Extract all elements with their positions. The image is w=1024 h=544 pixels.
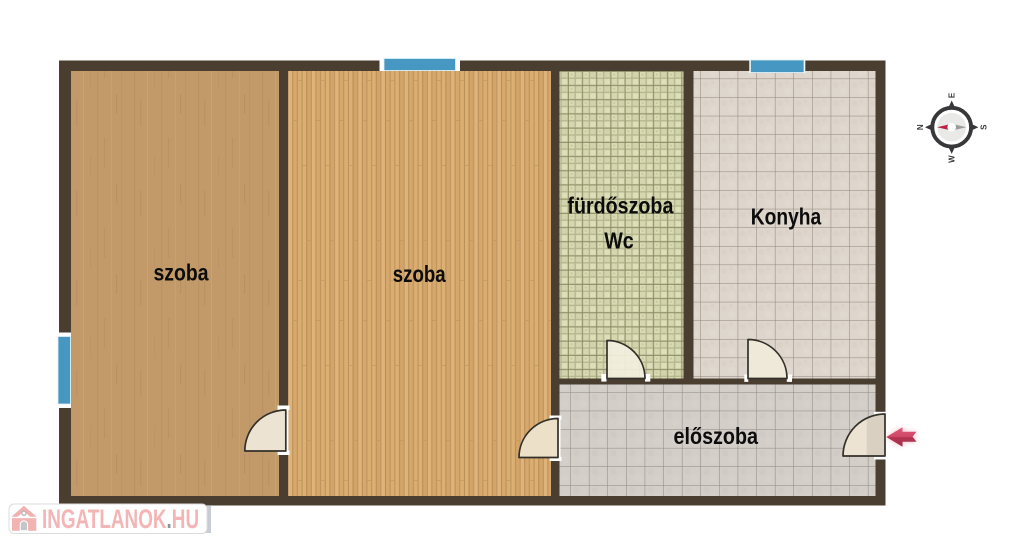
- svg-text:Wc: Wc: [604, 228, 634, 254]
- svg-text:előszoba: előszoba: [674, 423, 759, 449]
- svg-text:W: W: [948, 155, 957, 163]
- svg-text:szoba: szoba: [154, 260, 209, 286]
- svg-text:E: E: [948, 92, 957, 98]
- svg-text:Konyha: Konyha: [751, 204, 822, 230]
- svg-text:N: N: [916, 124, 925, 130]
- svg-text:fürdőszoba: fürdőszoba: [567, 193, 673, 219]
- svg-text:INGATLANOK.HU: INGATLANOK.HU: [42, 504, 199, 534]
- svg-text:szoba: szoba: [393, 261, 446, 287]
- svg-text:S: S: [979, 124, 988, 130]
